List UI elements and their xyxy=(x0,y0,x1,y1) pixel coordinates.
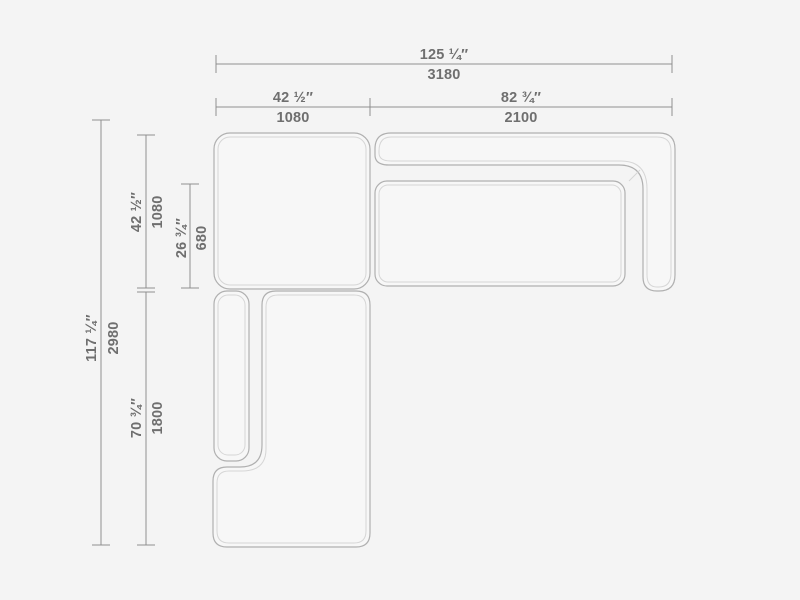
dimensions: 125 ¼″ 3180 42 ½″ 1080 82 ¾″ 2100 xyxy=(84,47,672,545)
dim-label-mm: 1080 xyxy=(150,195,166,228)
furniture-plan xyxy=(213,133,675,547)
dim-label-inches: 70 ¾″ xyxy=(129,398,145,438)
chaise-armrest-outline xyxy=(214,291,249,461)
dim-seat-depth: 26 ¾″ 680 xyxy=(174,184,210,288)
dim-label-inches: 42 ½″ xyxy=(273,90,313,106)
dim-chaise-length: 70 ¾″ 1800 xyxy=(129,292,166,545)
dim-label-mm: 2980 xyxy=(106,321,122,354)
dim-corner-depth: 42 ½″ 1080 xyxy=(129,135,166,288)
dim-label-inches: 82 ¾″ xyxy=(501,90,541,106)
dim-label-mm: 1080 xyxy=(276,110,309,126)
dim-label-mm: 680 xyxy=(194,226,210,251)
sofa-seat-outline xyxy=(375,181,625,286)
dim-label-inches: 26 ¾″ xyxy=(174,218,190,258)
dim-label-inches: 125 ¼″ xyxy=(420,47,468,63)
dim-total-width: 125 ¼″ 3180 xyxy=(216,47,672,83)
dim-total-depth: 117 ¼″ 2980 xyxy=(84,120,122,545)
corner-module-outline xyxy=(214,133,370,289)
diagram-canvas: 125 ¼″ 3180 42 ½″ 1080 82 ¾″ 2100 xyxy=(0,0,800,600)
dim-label-inches: 117 ¼″ xyxy=(84,314,100,362)
dim-left-section-width: 42 ½″ 1080 xyxy=(216,90,370,126)
dim-label-mm: 3180 xyxy=(427,67,460,83)
dim-label-inches: 42 ½″ xyxy=(129,192,145,232)
sofa-dimension-diagram: 125 ¼″ 3180 42 ½″ 1080 82 ¾″ 2100 xyxy=(0,0,800,600)
dim-right-section-width: 82 ¾″ 2100 xyxy=(370,90,672,126)
dim-label-mm: 1800 xyxy=(150,401,166,434)
dim-label-mm: 2100 xyxy=(504,110,537,126)
sofa-corner-seam xyxy=(629,170,640,181)
